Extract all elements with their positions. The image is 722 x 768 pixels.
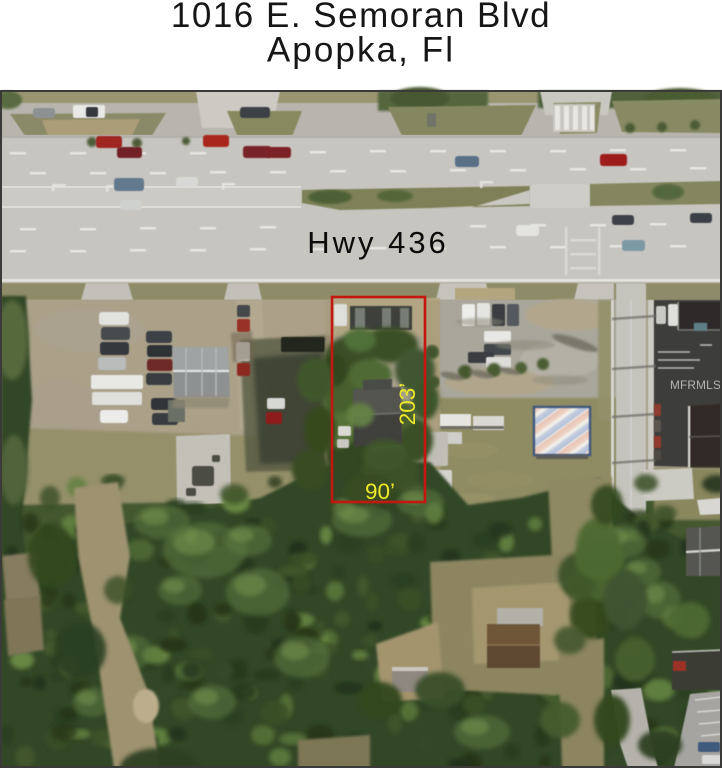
svg-text:90’: 90’ — [365, 479, 395, 504]
svg-text:203’: 203’ — [395, 383, 420, 426]
svg-text:Apopka, Fl: Apopka, Fl — [267, 31, 455, 70]
svg-text:MFRMLS: MFRMLS — [670, 378, 721, 392]
svg-text:Hwy 436: Hwy 436 — [307, 225, 449, 260]
